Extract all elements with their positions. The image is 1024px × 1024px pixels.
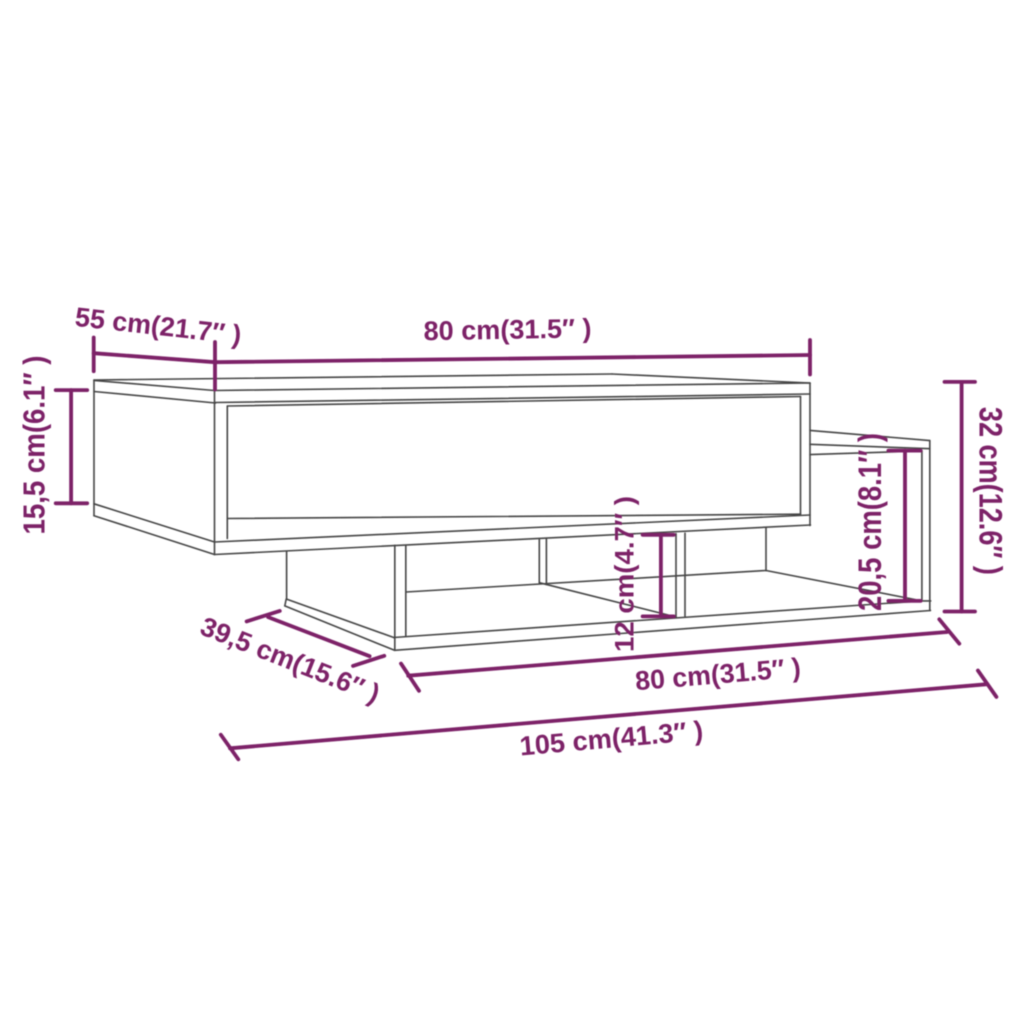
svg-text:32 cm(12.6″ ): 32 cm(12.6″ ) [973, 407, 1009, 575]
svg-text:20,5 cm(8.1″ ): 20,5 cm(8.1″ ) [852, 433, 888, 611]
svg-text:12 cm(4.7″ ): 12 cm(4.7″ ) [610, 496, 640, 652]
svg-text:15,5 cm(6.1″ ): 15,5 cm(6.1″ ) [16, 356, 51, 535]
svg-text:80 cm(31.5″ ): 80 cm(31.5″ ) [634, 652, 802, 696]
svg-text:80 cm(31.5″ ): 80 cm(31.5″ ) [423, 313, 591, 346]
svg-text:55 cm(21.7″ ): 55 cm(21.7″ ) [74, 302, 243, 350]
